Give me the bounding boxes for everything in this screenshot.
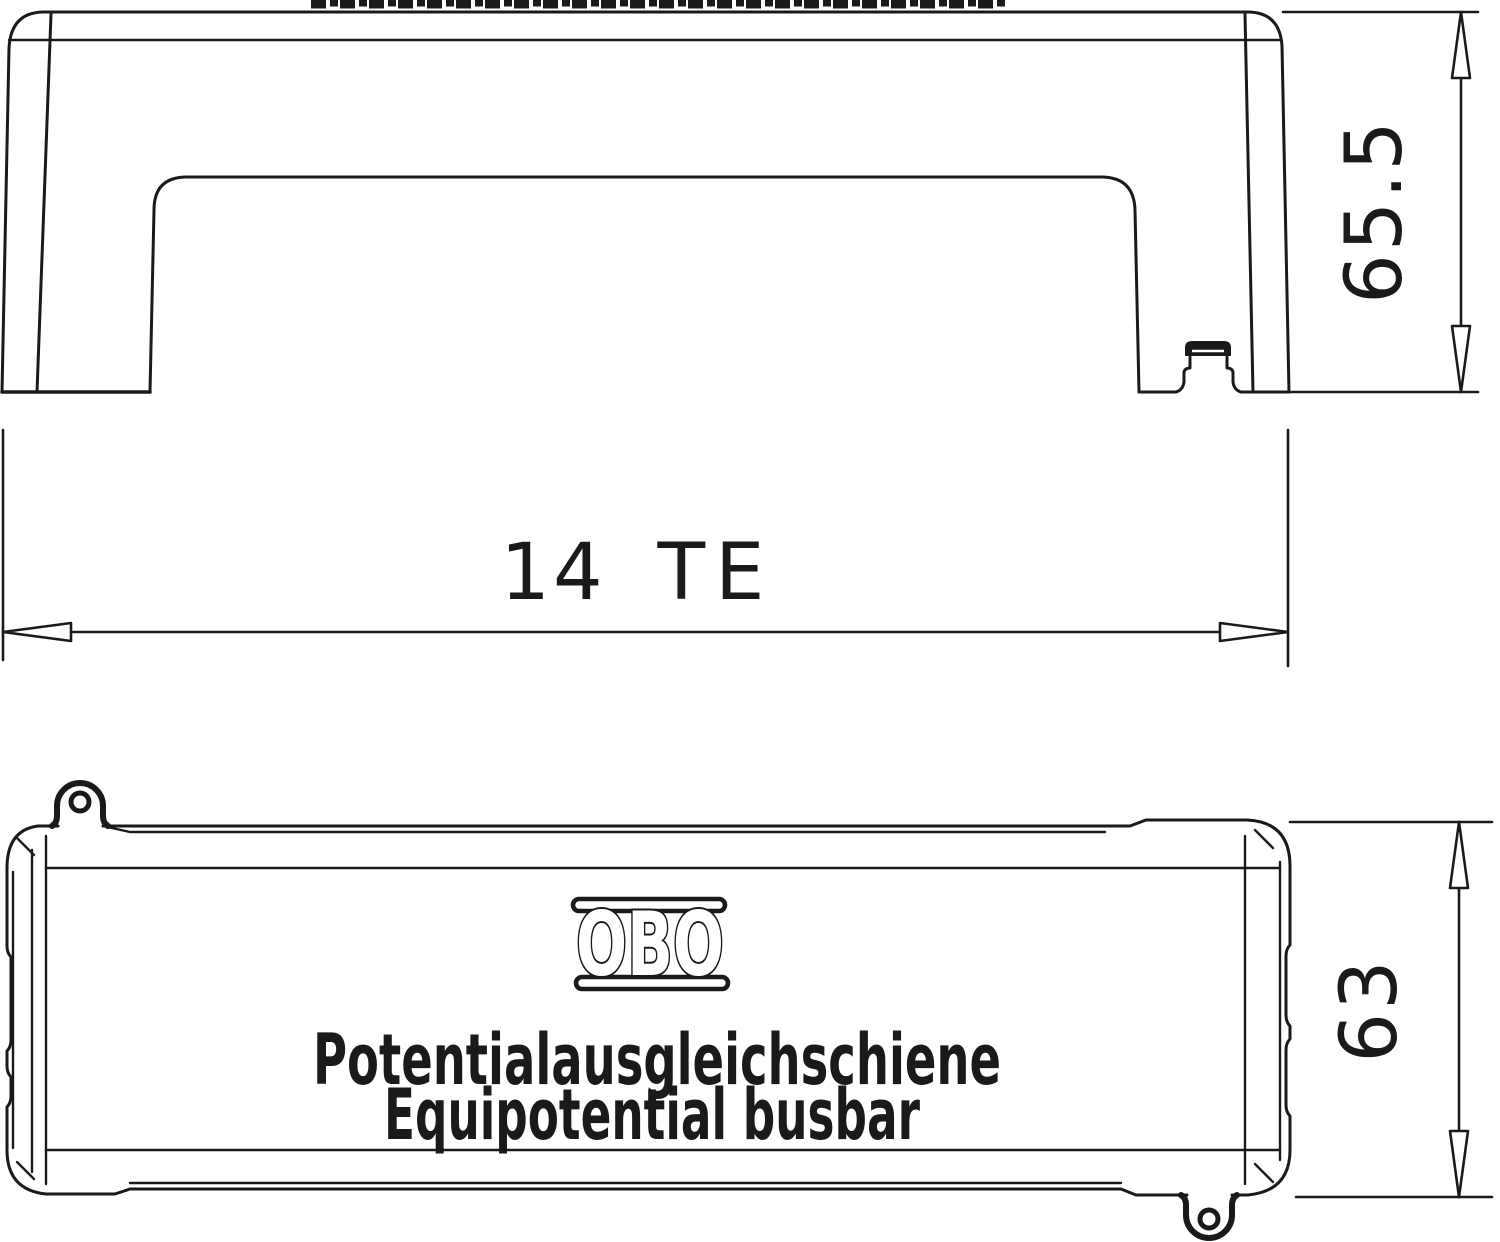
din-clip-cap [1186, 342, 1230, 355]
dimension-side-height: 65.5 [1283, 12, 1478, 392]
product-name-en: Equipotential busbar [384, 1074, 920, 1156]
mounting-lug-top-hole [71, 793, 89, 811]
side-view-outer-profile [2, 12, 1289, 392]
arrow-down-icon [1452, 326, 1470, 392]
arrow-up-icon [1452, 12, 1470, 78]
arrow-right-icon [1220, 623, 1288, 641]
technical-drawing-page: 65.5 14 TE [0, 0, 1500, 1242]
dimension-unit-width: TE [657, 528, 775, 618]
mounting-lug-top [52, 783, 108, 826]
side-view-right-foot [1139, 357, 1289, 392]
obo-logo: OBO [573, 893, 728, 996]
side-view-left-wall-inner [37, 14, 51, 392]
side-view-inner-cutout [150, 177, 1139, 392]
arrow-down-icon [1450, 1131, 1468, 1197]
mounting-lug-bottom-outline [1181, 1195, 1237, 1238]
mounting-lug-bottom [1181, 1195, 1237, 1238]
mounting-lug-top-outline [52, 783, 108, 826]
corner-miter-top-right [1255, 830, 1273, 848]
dimension-value-width: 14 [500, 528, 605, 618]
dimension-width: 14 TE [3, 430, 1288, 666]
corner-miter-bottom-right [1255, 1164, 1273, 1182]
busbar-dimension-drawing: 65.5 14 TE [0, 0, 1500, 1242]
dimension-value-side-height: 65.5 [1330, 118, 1420, 304]
arrow-left-icon [3, 623, 71, 641]
front-view: OBO Potentialausgleichschiene Equipotent… [7, 783, 1290, 1238]
side-view-right-wall-inner [1245, 14, 1253, 392]
mounting-lug-bottom-hole [1200, 1210, 1218, 1228]
side-profile-view [2, 0, 1289, 392]
obo-logo-text: OBO [576, 893, 724, 996]
arrow-up-icon [1450, 822, 1468, 888]
dimension-value-front-height: 63 [1325, 957, 1415, 1062]
knurl-strip [311, 0, 1005, 9]
dimension-front-height: 63 [1290, 822, 1492, 1197]
corner-miter-top-left [17, 838, 34, 855]
